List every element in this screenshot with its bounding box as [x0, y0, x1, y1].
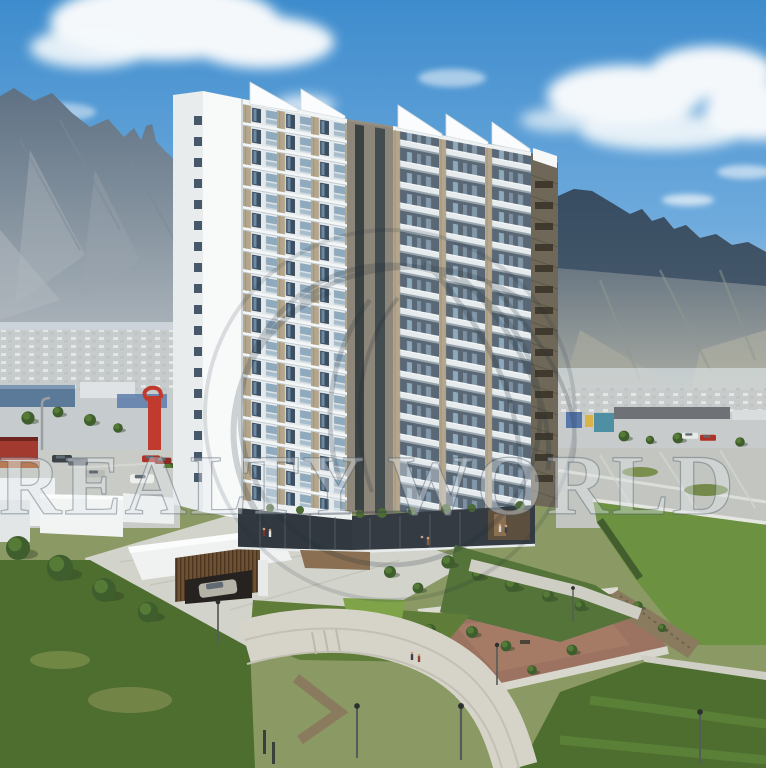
property-aerial-rendering: REALTY WORLD — [0, 0, 766, 768]
watermark-text: REALTY WORLD — [0, 437, 737, 533]
